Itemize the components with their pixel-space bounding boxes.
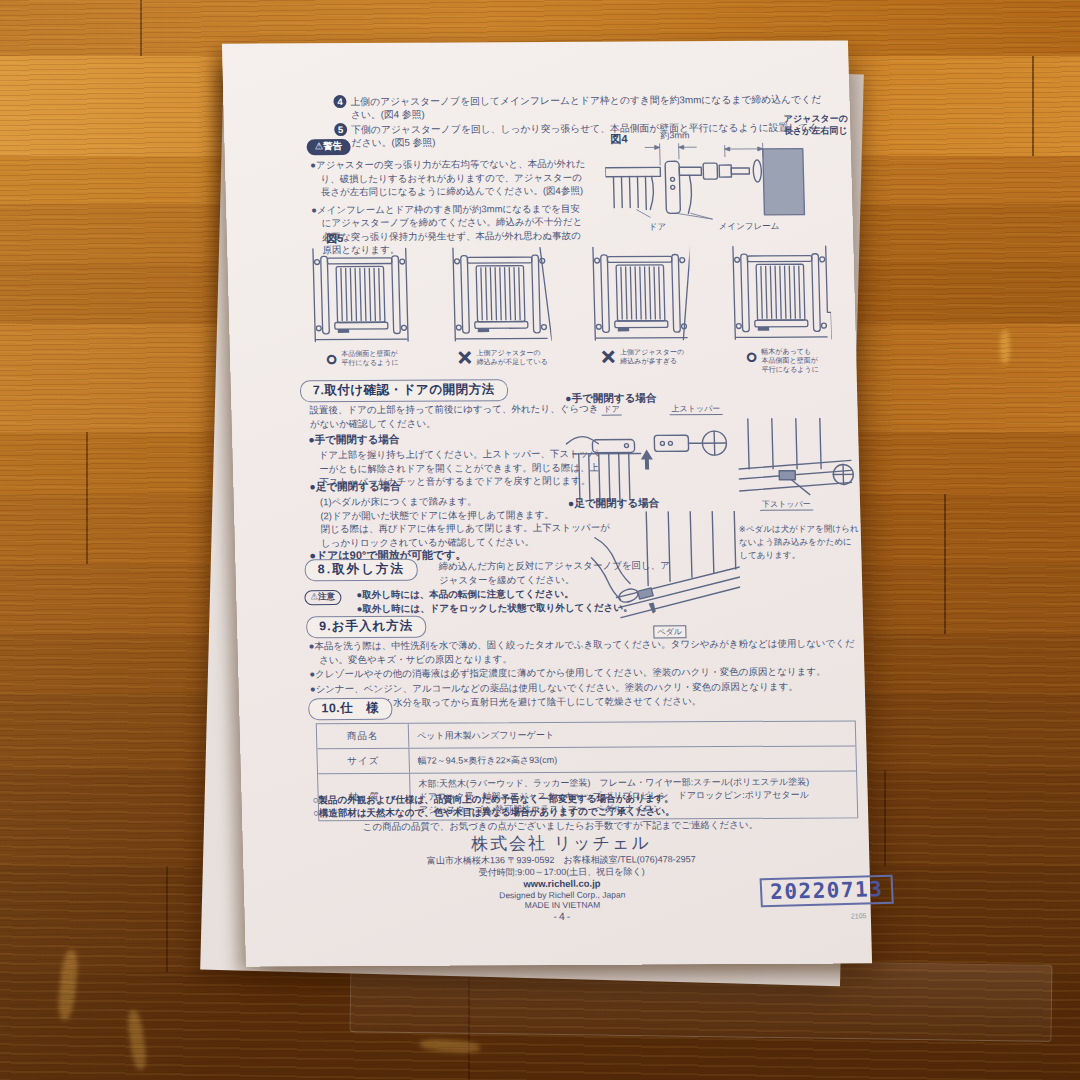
- plank-seam: [1032, 56, 1034, 156]
- date-stamp: 20220713: [760, 875, 894, 907]
- fig5-caption: 本品側面と壁面が 平行になるように: [341, 349, 398, 367]
- fig5-example-ng-2: ✕ 上側アジャスターの 締込みが多すぎる: [573, 239, 709, 375]
- photo-of-manual-on-floor: 4 上側のアジャスターノブを回してメインフレームとドア枠とのすき間を約3mmにな…: [0, 0, 1080, 1080]
- warning-badge: ⚠警告: [306, 139, 350, 155]
- warning-icon: ⚠: [314, 140, 323, 151]
- fig5-caption: 幅木があっても 本品側面と壁面が 平行になるように: [761, 347, 819, 374]
- spec-notes: ○製品の外観および仕様は、品質向上のため予告なく一部変更する場合があります。 ○…: [313, 790, 866, 819]
- caution-badge: ⚠注意: [304, 590, 341, 605]
- gate-drawing: [589, 239, 692, 346]
- spec-value: ペット用木製ハンズフリーゲート: [409, 721, 856, 747]
- hand-open-drawing: [562, 412, 858, 506]
- section10-header: 10.仕 様: [308, 698, 392, 720]
- fig5-example-ok-2: ○ 幅木があっても 本品側面と壁面が 平行になるように: [713, 238, 849, 374]
- figure-5: 図5 ○ 本品側面と壁面が 平行になるように: [293, 226, 855, 377]
- fig4-note: アジャスターの 長さが左右同じ: [784, 112, 849, 136]
- section7-header: 7.取付け確認・ドアの開閉方法: [300, 379, 508, 402]
- caution-item: ●取外し時には、ドアをロックした状態で取り外してください。: [357, 600, 667, 615]
- spec-value: 幅72～94.5×奥行き22×高さ93(cm): [409, 746, 856, 772]
- spec-label: サイズ: [317, 749, 410, 773]
- plastic-sleeve: [349, 955, 1052, 1042]
- fig5-example-ok-1: ○ 本品側面と壁面が 平行になるように: [293, 241, 429, 377]
- gate-drawing: [449, 240, 552, 347]
- section8-header: 8.取外し方法: [304, 559, 418, 582]
- section8-body: 締め込んだ方向と反対にアジャスターノブを回し、アジャスターを緩めてください。: [438, 558, 675, 586]
- plank-seam: [884, 770, 886, 866]
- ng-mark: ✕: [600, 348, 616, 368]
- step-number-badge: 5: [334, 123, 347, 136]
- fig5-caption: 上側アジャスターの 締込みが不足している: [476, 348, 547, 366]
- fig5-example-ng-1: ✕ 上側アジャスターの 締込みが不足している: [433, 240, 569, 376]
- fig4-drawing: [605, 140, 853, 221]
- ok-mark: ○: [326, 349, 338, 369]
- spec-row-size: サイズ 幅72～94.5×奥行き22×高さ93(cm): [317, 745, 856, 773]
- care-list: ●本品を洗う際は、中性洗剤を水で薄め、固く絞ったタオルでふき取ってください。タワ…: [309, 636, 863, 709]
- caution-list: ●取外し時には、本品の転倒に注意してください。 ●取外し時には、ドアをロックした…: [356, 586, 667, 615]
- manual-page: 4 上側のアジャスターノブを回してメインフレームとドア枠とのすき間を約3mmにな…: [222, 40, 872, 966]
- section7-foot-title: ●足で開閉する場合: [309, 480, 400, 494]
- section7-intro: 設置後、ドアの上部を持って前後にゆすって、外れたり、ぐらつきがないか確認してくだ…: [309, 402, 602, 431]
- gate-drawing: [729, 239, 832, 346]
- care-item: ●本品を洗う際は、中性洗剤を水で薄め、固く絞ったタオルでふき取ってください。タワ…: [309, 636, 862, 666]
- caution-label: 注意: [318, 591, 335, 601]
- plank-seam: [944, 494, 946, 634]
- foot-step: 閉じる際は、再びドアに体を押しあて閉じます。上下ストッパーがしっかりロックされて…: [320, 521, 613, 550]
- warning-item: ●アジャスターの突っ張り力が左右均等でないと、本品が外れたり、破損したりするおそ…: [310, 157, 589, 199]
- warning-label: 警告: [323, 140, 342, 151]
- section9-header: 9.お手入れ方法: [306, 616, 427, 639]
- plank-seam: [86, 432, 88, 564]
- pedal-note: ※ペダルは犬がドアを開けられないよう踏み込みをかためにしてあります。: [739, 522, 860, 562]
- plank-seam: [166, 866, 168, 972]
- step-number-badge: 4: [333, 95, 346, 108]
- ng-mark: ✕: [456, 348, 472, 368]
- plank-seam: [140, 0, 142, 56]
- spec-row-product: 商品名 ペット用木製ハンズフリーゲート: [317, 721, 856, 748]
- figure-4: アジャスターの 長さが左右同じ 図4 約3mm: [604, 112, 853, 237]
- page-number: -4-: [265, 908, 861, 923]
- gate-drawing: [309, 241, 412, 348]
- care-item: ●シンナー、ベンジン、アルコールなどの薬品は使用しないでください。塗装のハクリ・…: [310, 679, 862, 695]
- ok-mark: ○: [746, 347, 758, 367]
- floor-scuff: [1000, 330, 1010, 364]
- section7-hand-title: ●手で開閉する場合: [308, 433, 399, 447]
- care-item: ●クレゾールやその他の消毒液は必ず指定濃度に薄めてから使用してください。塗装のハ…: [309, 664, 861, 680]
- spec-label: 商品名: [317, 724, 410, 748]
- print-code: 2105: [851, 912, 867, 919]
- care-item: ●洗った後は、よく水分を取ってから直射日光を避けて陰干しにして乾燥させてください…: [310, 693, 862, 709]
- fig5-caption: 上側アジャスターの 締込みが多すぎる: [620, 347, 684, 365]
